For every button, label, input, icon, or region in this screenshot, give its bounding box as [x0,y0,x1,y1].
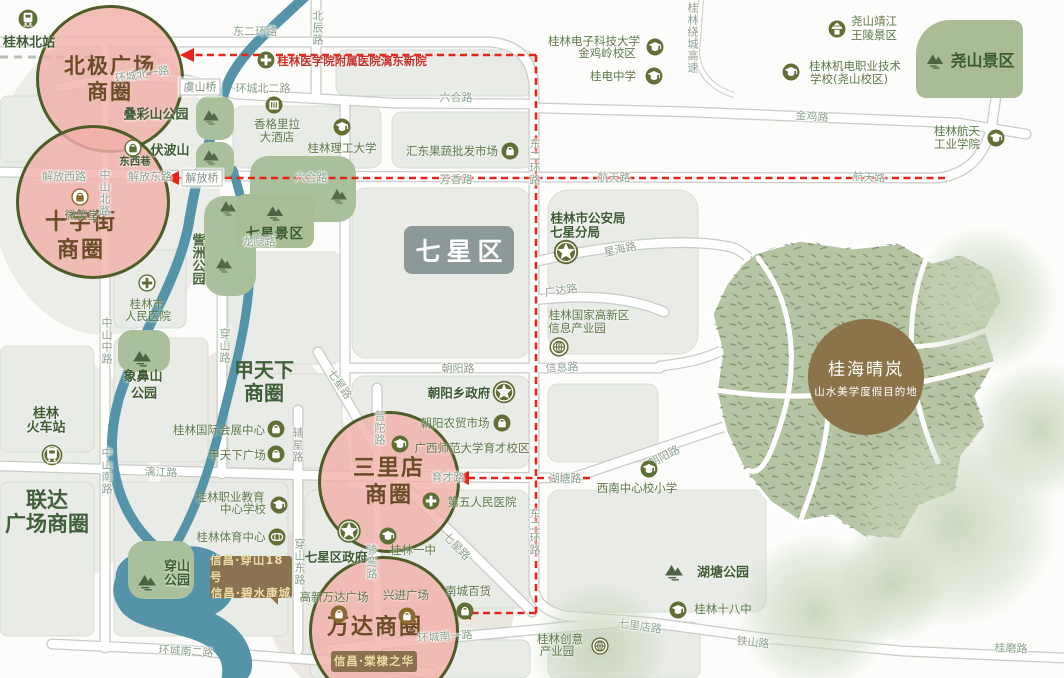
road-label: 中山南路 [98,447,114,495]
mountain-icon [662,558,686,582]
star-icon [337,519,362,544]
mountain-icon [130,344,154,368]
poi-label[interactable]: 广西师范大学育才校区 [415,440,530,456]
road-label: 航天路 [852,168,886,186]
bag-icon [493,414,511,432]
cross-icon [138,274,156,292]
circle-label-line: 商圈 [64,79,156,105]
road-label: 龙隐路 [243,233,276,249]
mountain-icon [135,568,159,592]
poi-label[interactable]: 七星区政府 [305,547,368,566]
road-label: 东二环路 [526,138,542,186]
circle-label-line: 商圈 [45,237,117,265]
bag-icon [267,445,285,463]
pagoda-icon [828,20,846,38]
grad-icon [646,38,664,56]
grad-icon [270,496,288,514]
resort-badge-guihaiqinglan[interactable]: 桂海晴岚 山水美学度假目的地 [808,319,924,435]
circle-label-line: 商圈 [353,482,425,510]
road-label: 中山中路 [98,317,114,365]
poi-label[interactable]: 訾洲公园 [188,233,207,285]
grad-icon [333,118,351,136]
mountain-icon [264,200,286,222]
scenic-label: 尧山景区 [950,47,1014,71]
poi-label[interactable]: 高新万达广场 [300,589,369,605]
resort-title: 桂海晴岚 [828,355,904,380]
scenic-box-yaoshan[interactable]: 尧山景区 [916,20,1023,98]
district-label-qixingqu: 七星区 [404,226,514,274]
road-label: 航天路 [598,169,631,185]
poi-label[interactable]: 中心学校 [220,501,266,517]
star-icon [492,380,516,404]
hotel-icon [265,96,283,114]
road-label: 桂磨路 [994,639,1028,656]
road-label: 漓江路 [144,463,178,481]
poi-label[interactable]: 公园 [164,570,190,589]
road-label: 六合路 [440,89,473,105]
poi-label[interactable]: 学校(尧山校区) [810,71,888,87]
grad-icon [640,460,658,478]
mountain-icon [924,48,946,70]
poi-label[interactable]: 桂林体育中心 [197,529,266,545]
poi-label[interactable]: 西南中心校小学 [597,480,678,496]
globe-icon [591,637,609,655]
bag-icon [398,607,416,625]
road-label: 铁山路 [736,632,770,651]
cross-icon [422,492,440,510]
road-label: 湖塘路 [549,470,582,486]
road-label: 东二环路 [526,508,542,556]
grad-icon [391,435,409,453]
road-label: 解放西路 [42,168,86,184]
road-label: 朝阳路 [442,360,475,376]
road-label: 育才路 [432,469,465,485]
grad-icon [987,129,1005,147]
road-label: 北辰路 [309,10,325,46]
poi-label[interactable]: 大酒店 [260,129,295,145]
road-label: 辅星路 [289,427,305,463]
train-icon [18,9,38,29]
road-label: 普陀路 [371,410,387,446]
poi-label[interactable]: 七星分局 [550,222,600,241]
road-label: 解放东路 [128,168,172,184]
globe-icon [549,337,569,357]
bridge-label: 解放桥 [182,170,223,187]
poi-label[interactable]: 桂林医学院附属医院漓东新院 [277,53,427,69]
estate-line: 信昌·碧水康城 [211,585,291,602]
poi-label[interactable]: 桂林理工大学 [308,140,377,156]
poi-label[interactable]: 产业园 [540,643,575,659]
bag-icon [71,188,89,206]
poi-label[interactable]: 桂林国际会展中心 [173,422,265,438]
poi-label[interactable]: 甲天下广场 [208,447,266,463]
road-label: 东二环路 [233,23,277,39]
poi-label[interactable]: 公园 [131,383,157,402]
grad-icon [379,527,397,545]
area-title-line: 商圈 [234,382,294,405]
grad-icon [782,63,800,81]
bag-icon [456,602,474,620]
area-title-lianda-plaza: 联达广场商圈 [5,488,89,536]
resort-subtitle: 山水美学度假目的地 [814,384,918,399]
cross-icon [257,51,275,69]
guilin-map: 北极广场 商圈 十字街 商圈 三里店 商圈 万达商圈 七星区 尧山景区 七星景区… [0,0,1064,678]
poi-label[interactable]: 兴进广场 [383,587,429,603]
area-title-line: 甲天下 [234,359,294,382]
star-icon [553,239,579,265]
stadium-icon [268,528,286,546]
poi-label[interactable]: 东西巷 [119,154,151,169]
poi-label[interactable]: 朝阳乡政府 [428,383,491,402]
poi-label[interactable]: 湖塘公园 [697,562,749,581]
area-title-line: 联达 [5,488,89,512]
area-title-jiatianxia: 甲天下商圈 [234,359,294,405]
road-label: 金鸡路 [795,107,829,125]
business-circle-shizijie[interactable]: 十字街 商圈 [16,125,170,279]
poi-label[interactable]: 微笑堂 [65,207,100,223]
estate-callout[interactable]: 信昌·棠棣之华 [331,651,417,672]
area-title-line: 广场商圈 [5,512,89,536]
bag-icon [501,142,519,160]
estate-line: 信昌·棠棣之华 [334,653,414,670]
poi-label[interactable]: 叠彩山公园 [123,104,188,123]
road-label: 信息路 [545,358,579,376]
poi-label[interactable]: 人民医院 [125,308,171,324]
grad-icon [669,601,687,619]
road-label: 环城北二路 [236,80,291,96]
road-label: 芳香路 [440,171,473,187]
poi-label[interactable]: 桂电中学 [590,68,636,84]
poi-label[interactable]: 桂林十八中 [694,601,752,617]
poi-label[interactable]: 信息产业园 [548,320,606,336]
bridge-label: 虞山桥 [180,79,221,96]
bag-icon [330,605,348,623]
road-label: 穿山路 [216,328,232,364]
poi-label[interactable]: 汇东果蔬批发市场 [406,143,498,159]
poi-label[interactable]: 桂林北站 [3,32,55,51]
poi-label[interactable]: 朝阳农贸市场 [421,415,490,431]
poi-label[interactable]: 金鸡岭校区 [578,45,636,61]
circle-label-line: 三里店 [353,455,425,483]
road-label: 六合路 [295,169,328,185]
poi-label[interactable]: 第五人民医院 [448,494,517,510]
grad-icon [645,67,663,85]
poi-label[interactable]: 南城百货 [445,583,491,599]
poi-label[interactable]: 王陵景区 [851,27,897,43]
poi-label[interactable]: 火车站 [26,417,65,436]
estate-line: 信昌·穿山18号 [210,552,292,585]
road-label: 桂林绕城高速 [684,2,700,74]
estate-callout[interactable]: 信昌·穿山18号信昌·碧水康城 [210,556,292,598]
train-icon [41,444,63,466]
poi-label[interactable]: 工业学院 [934,136,980,152]
bag-icon [267,420,285,438]
poi-label[interactable]: 伏波山 [150,140,189,159]
